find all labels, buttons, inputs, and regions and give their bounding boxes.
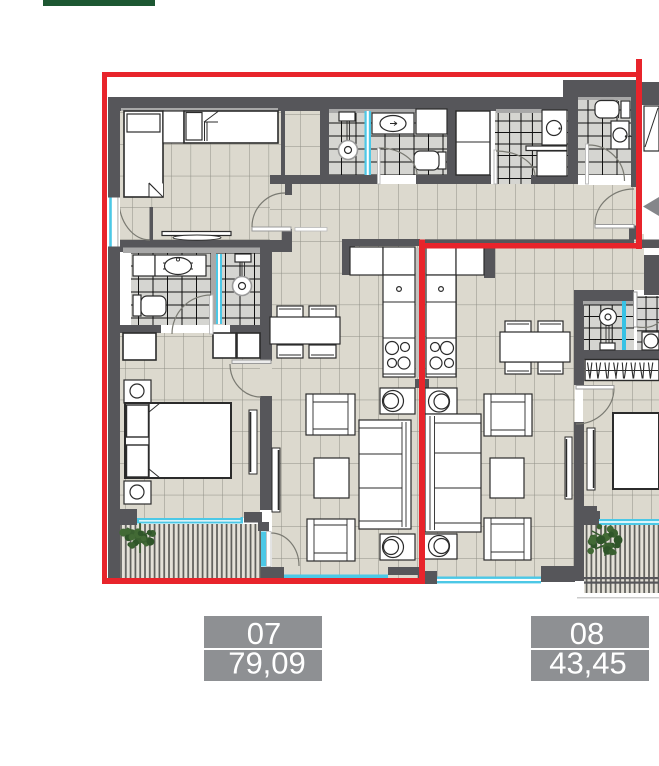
svg-text:43,45: 43,45: [549, 646, 627, 681]
svg-text:79,09: 79,09: [228, 646, 306, 681]
